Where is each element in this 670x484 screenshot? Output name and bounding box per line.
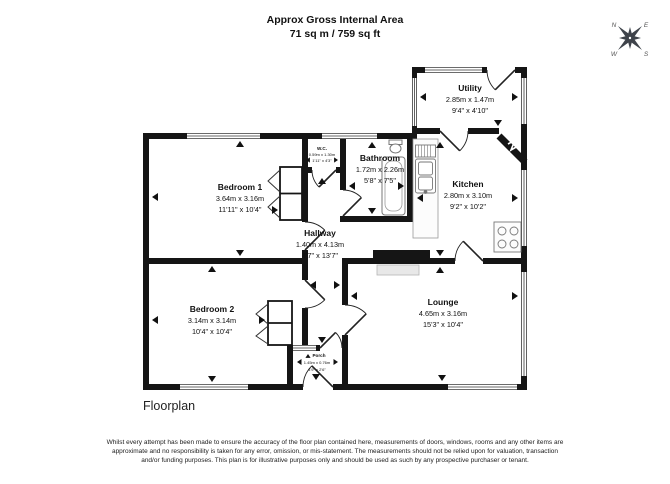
- wc-name: W.C.: [317, 146, 327, 151]
- hob-fixture: [494, 222, 521, 252]
- radiator-fixture: [377, 265, 419, 275]
- measure-arrow: [436, 267, 444, 273]
- measure-arrow: [351, 292, 357, 300]
- measure-arrow: [349, 182, 355, 190]
- measure-arrow: [297, 359, 302, 365]
- measure-arrow: [334, 157, 338, 162]
- porch-imperial: 4'9" x 2'6": [308, 367, 326, 372]
- measure-arrow: [208, 266, 216, 272]
- bedroom2-metric: 3.14m x 3.14m: [188, 316, 236, 325]
- kitchen-imperial: 9'2" x 10'2": [450, 202, 486, 211]
- compass-n: N: [612, 22, 617, 29]
- bathroom-metric: 1.72m x 2.26m: [356, 165, 404, 174]
- measure-arrow: [512, 194, 518, 202]
- bathroom-imperial: 5'8" x 7'5": [364, 176, 396, 185]
- measure-arrow: [438, 375, 446, 381]
- room-label-utility: Utility 2.85m x 1.47m 9'4" x 4'10": [446, 83, 494, 115]
- wc-metric: 0.59m x 1.30m: [309, 152, 336, 157]
- compass-e: E: [644, 22, 649, 29]
- room-label-bedroom1: Bedroom 1 3.64m x 3.16m 11'11" x 10'4": [216, 182, 264, 214]
- measure-arrow: [236, 141, 244, 147]
- measure-arrow: [334, 359, 339, 365]
- bedroom1-name: Bedroom 1: [218, 182, 263, 192]
- compass-w: W: [611, 51, 618, 58]
- bedroom1-metric: 3.64m x 3.16m: [216, 194, 264, 203]
- measure-arrow: [312, 374, 320, 380]
- closets: [268, 167, 302, 345]
- floorplan-drawing: Bedroom 1 3.64m x 3.16m 11'11" x 10'4" B…: [0, 0, 670, 484]
- sink-fixture: [416, 145, 436, 193]
- windows: [180, 67, 527, 390]
- measure-arrow: [512, 93, 518, 101]
- hallway-metric: 1.40m x 4.13m: [296, 240, 344, 249]
- room-label-lounge: Lounge 4.65m x 3.16m 15'3" x 10'4": [419, 297, 467, 329]
- measure-arrow: [494, 120, 502, 126]
- porch-metric: 1.45m x 0.76m: [304, 360, 331, 365]
- measure-arrow: [259, 316, 265, 324]
- kitchen-name: Kitchen: [452, 179, 483, 189]
- room-label-kitchen: Kitchen 2.80m x 3.10m 9'2" x 10'2": [444, 179, 492, 211]
- measure-arrow: [305, 354, 310, 358]
- kitchen-metric: 2.80m x 3.10m: [444, 191, 492, 200]
- measure-arrow: [368, 142, 376, 148]
- measure-arrow: [436, 250, 444, 256]
- porch-name: Porch: [312, 353, 325, 358]
- measure-arrow: [236, 250, 244, 256]
- utility-name: Utility: [458, 83, 482, 93]
- utility-metric: 2.85m x 1.47m: [446, 95, 494, 104]
- basin-fixture: [389, 140, 402, 153]
- measure-arrow: [512, 292, 518, 300]
- compass-s: S: [644, 51, 649, 58]
- room-label-bedroom2: Bedroom 2 3.14m x 3.14m 10'4" x 10'4": [188, 304, 236, 336]
- hallway-name: Hallway: [304, 228, 336, 238]
- bedroom2-name: Bedroom 2: [190, 304, 235, 314]
- bedroom2-imperial: 10'4" x 10'4": [192, 327, 232, 336]
- wc-imperial: 1'11" x 4'3": [312, 158, 332, 163]
- hallway-imperial: 4'7" x 13'7": [302, 251, 338, 260]
- measure-arrow: [368, 208, 376, 214]
- compass-rose-icon: N E S W: [611, 22, 649, 58]
- floorplan-caption: Floorplan: [143, 399, 195, 413]
- bedroom1-imperial: 11'11" x 10'4": [219, 205, 262, 214]
- floorplan-page: Approx Gross Internal Area 71 sq m / 759…: [0, 0, 670, 484]
- measure-arrow: [334, 281, 340, 289]
- bathroom-name: Bathroom: [360, 153, 401, 163]
- utility-imperial: 9'4" x 4'10": [452, 106, 488, 115]
- lounge-name: Lounge: [428, 297, 459, 307]
- measure-arrow: [152, 316, 158, 324]
- measure-arrow: [420, 93, 426, 101]
- room-label-hallway: Hallway 1.40m x 4.13m 4'7" x 13'7": [296, 228, 344, 260]
- lounge-imperial: 15'3" x 10'4": [423, 320, 463, 329]
- measure-arrow: [152, 193, 158, 201]
- measure-arrow: [208, 376, 216, 382]
- room-label-wc: W.C. 0.59m x 1.30m 1'11" x 4'3": [309, 146, 336, 163]
- lounge-metric: 4.65m x 3.16m: [419, 309, 467, 318]
- disclaimer-text: Whilst every attempt has been made to en…: [106, 438, 564, 465]
